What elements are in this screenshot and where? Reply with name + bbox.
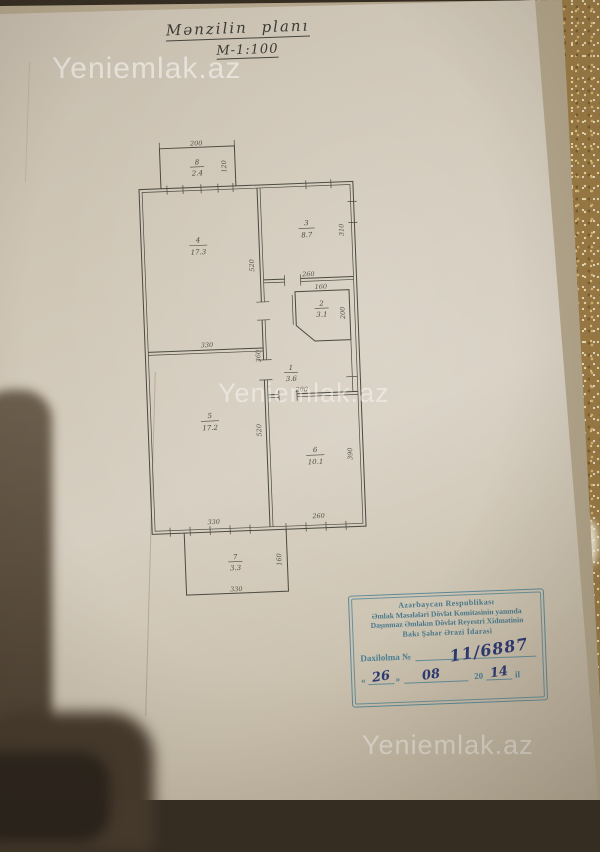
- room-label-7: 7 3.3: [228, 553, 243, 573]
- wall-outer: [139, 181, 366, 534]
- dim-room6-width: 260: [311, 512, 325, 521]
- stamp-date-row: « 26 » 08 20 14 il: [361, 665, 537, 685]
- dim-room4-height: 520: [248, 259, 256, 272]
- date-century: 20: [474, 670, 483, 680]
- room-label-5: 5 17.2: [201, 412, 220, 433]
- dim-room2-width: 160: [314, 282, 327, 290]
- stamp-entry-row: Daxilolma № 11/6887: [360, 641, 536, 663]
- wall-outer-inner: [142, 185, 363, 532]
- svg-text:17.3: 17.3: [190, 248, 206, 257]
- wall-hall-room6: [268, 391, 358, 394]
- date-year-slot: 14: [486, 666, 512, 680]
- dimension-labels: 200 120 330 520 310 260 160 200 360 200 …: [189, 134, 360, 595]
- date-month-slot: 08: [404, 668, 468, 683]
- dim-room4-width: 330: [201, 341, 214, 349]
- plan-scale: M-1:100: [216, 42, 279, 60]
- svg-text:3.1: 3.1: [316, 310, 327, 318]
- floor-plan: 200 120 330 520 310 260 160 200 360 200 …: [119, 125, 407, 615]
- dim-balcony7-depth: 160: [275, 553, 283, 566]
- svg-text:10.1: 10.1: [308, 458, 324, 467]
- room-label-8: 8 2.4: [190, 158, 205, 178]
- room-labels: 8 2.4 4 17.3 3 8.7 2 3.1 1 3.6 5 17.2: [186, 154, 339, 574]
- svg-text:8: 8: [195, 158, 200, 166]
- quote-close: »: [395, 674, 400, 684]
- svg-text:7: 7: [233, 553, 238, 561]
- document-title-block: Mənzilin planı M-1:100: [157, 15, 318, 62]
- svg-text:8.7: 8.7: [301, 231, 313, 239]
- handwritten-month: 08: [421, 666, 441, 683]
- dim-room5-height: 520: [255, 424, 263, 437]
- dim-room5-width: 330: [207, 518, 220, 526]
- floor-plan-walls: [137, 135, 371, 596]
- dim-balcony8-depth: 120: [220, 160, 228, 173]
- room-label-1: 1 3.6: [284, 364, 299, 384]
- svg-text:1: 1: [289, 364, 294, 372]
- dim-balcony7-width: 330: [230, 585, 243, 593]
- room-label-2: 2 3.1: [314, 299, 329, 319]
- svg-text:3.6: 3.6: [286, 375, 298, 383]
- entry-label: Daxilolma №: [360, 651, 411, 663]
- svg-text:3: 3: [304, 219, 309, 227]
- quote-open: «: [361, 675, 366, 685]
- dim-room3-height: 310: [337, 224, 345, 237]
- stamp-inner-border: Azərbaycan Respublikası Əmlak Məsələləri…: [351, 591, 545, 704]
- date-suffix: il: [515, 669, 520, 679]
- registry-stamp: Azərbaycan Respublikası Əmlak Məsələləri…: [348, 588, 548, 707]
- dim-hall-wall: 360: [254, 350, 262, 363]
- svg-text:5: 5: [207, 412, 212, 420]
- svg-text:2.4: 2.4: [191, 169, 203, 177]
- dim-balcony8-width: 200: [189, 139, 203, 148]
- room-label-6: 6 10.1: [306, 446, 325, 467]
- dim-room2-height: 200: [339, 307, 348, 321]
- svg-text:6: 6: [313, 446, 318, 454]
- dim-room6-height: 390: [346, 447, 354, 460]
- room-label-4: 4 17.3: [189, 236, 208, 257]
- handwritten-day: 26: [371, 668, 391, 685]
- svg-text:2: 2: [318, 300, 324, 308]
- handwritten-entry-number: 11/6887: [448, 634, 530, 665]
- handwritten-year: 14: [489, 664, 509, 681]
- date-day-slot: 26: [367, 671, 393, 685]
- entry-number-line: 11/6887: [415, 641, 537, 661]
- dim-hall-width: 200: [294, 385, 308, 394]
- svg-text:17.2: 17.2: [202, 424, 218, 433]
- dim-wing-width: 260: [301, 270, 315, 279]
- photo-of-floor-plan-document: { "photo": { "watermark_text": "Yeniemla…: [0, 0, 600, 800]
- svg-text:4: 4: [195, 236, 201, 244]
- room-label-3: 3 8.7: [298, 219, 315, 240]
- svg-text:3.3: 3.3: [230, 564, 242, 572]
